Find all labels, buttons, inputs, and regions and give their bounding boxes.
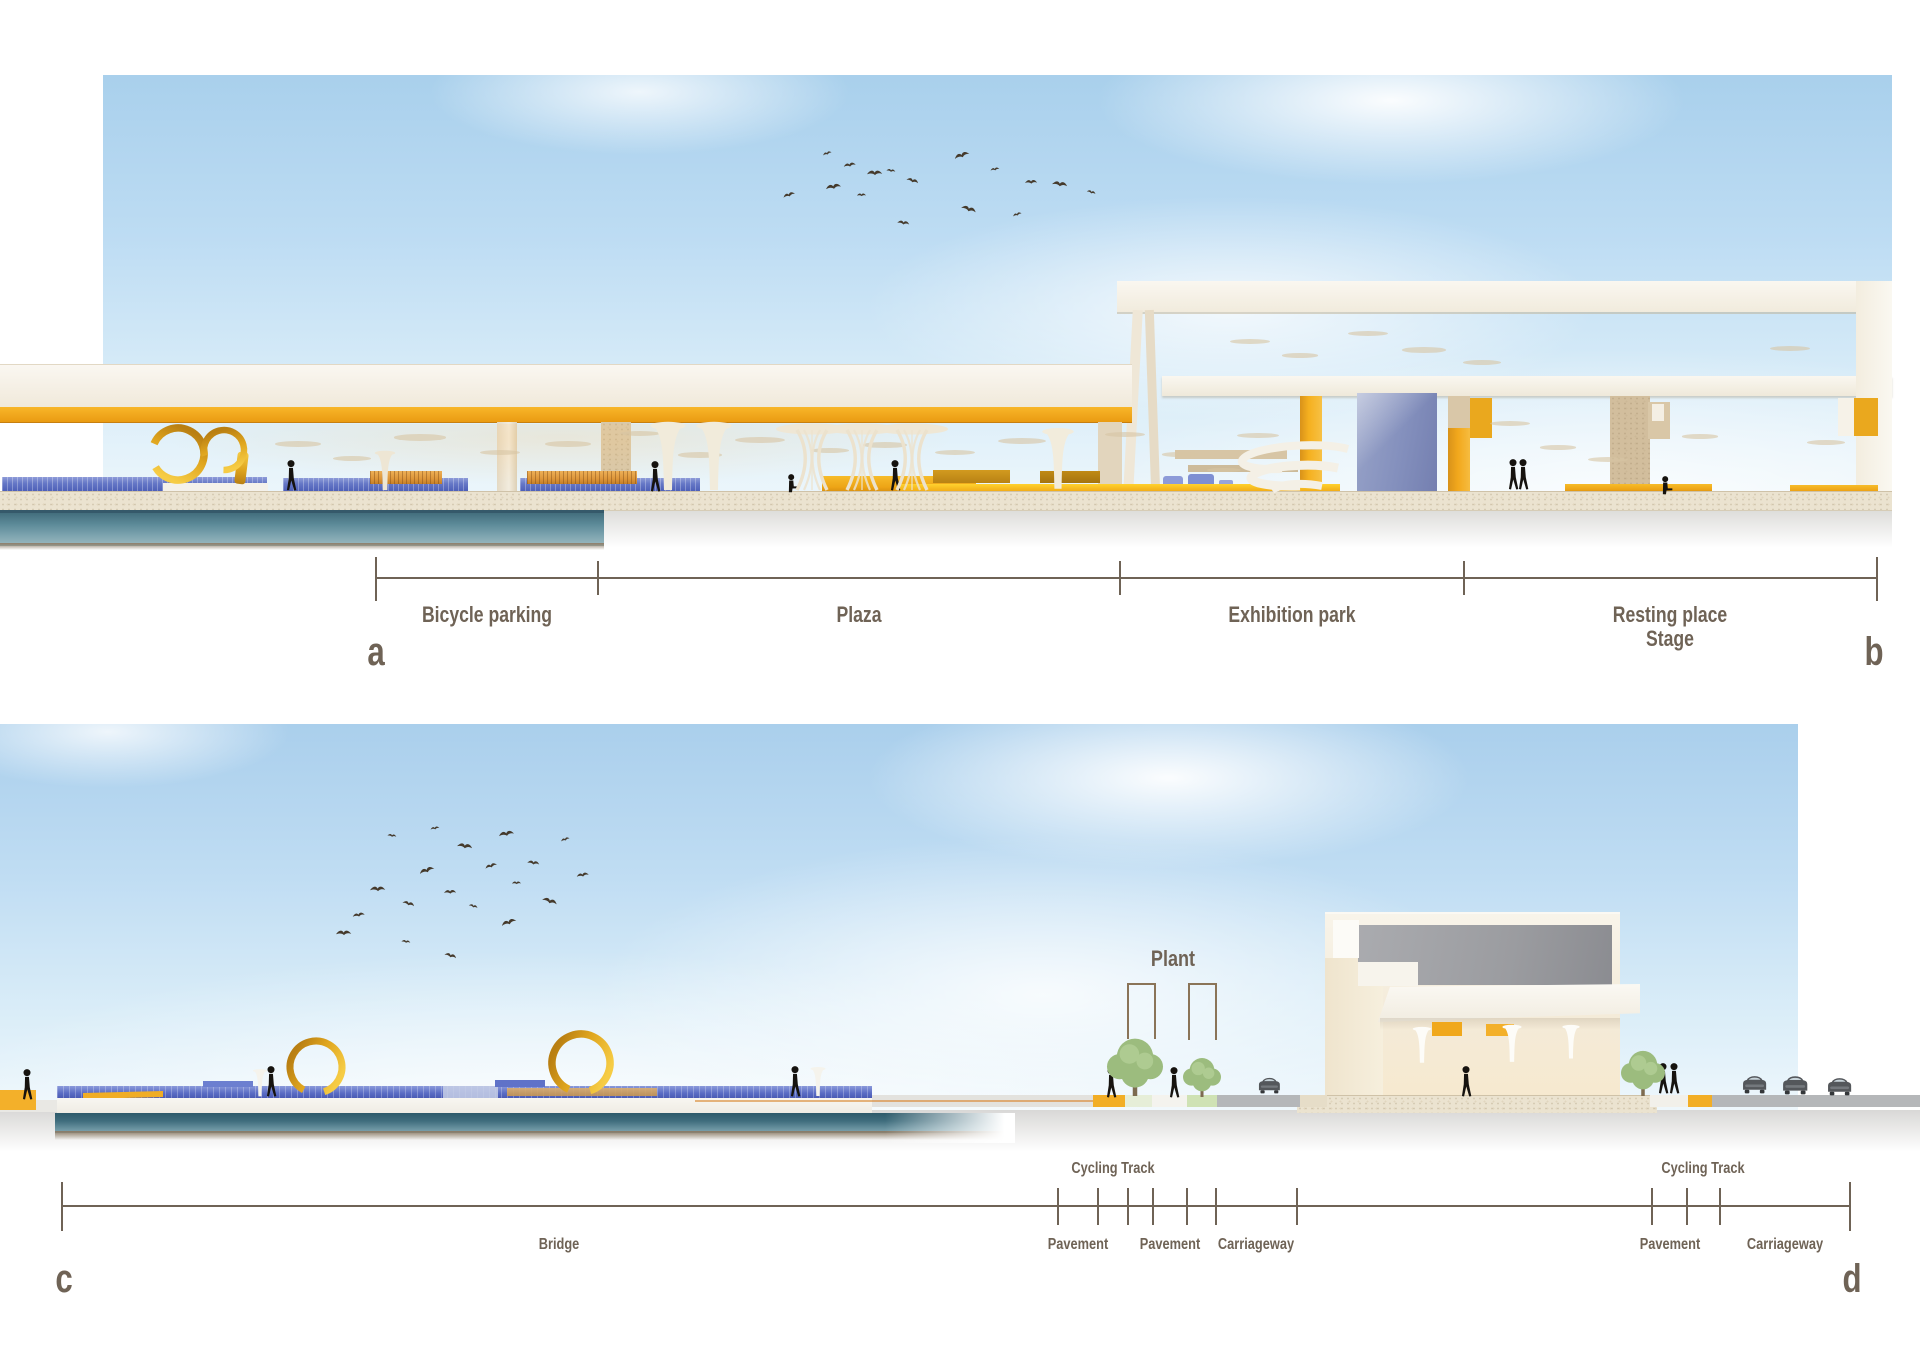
bird-icon <box>1052 181 1068 188</box>
bird-icon <box>822 151 831 156</box>
gold-ring-sculpture <box>542 1024 619 1101</box>
bird-icon <box>906 177 919 184</box>
bird-icon <box>430 826 439 830</box>
bird-icon <box>501 918 517 927</box>
dimension-tick <box>1215 1188 1217 1225</box>
dimension-tick <box>61 1182 63 1231</box>
bird-icon <box>469 903 478 908</box>
dimension-tick <box>375 557 377 601</box>
dimension-tick <box>1186 1188 1188 1225</box>
person-silhouette <box>1462 1066 1471 1096</box>
bird-icon <box>867 171 882 176</box>
person-silhouette <box>1670 1063 1679 1093</box>
bird-icon <box>897 220 910 225</box>
bird-icon <box>370 887 385 892</box>
zone-label: Carriageway <box>1168 1236 1344 1253</box>
person-silhouette <box>287 460 296 490</box>
tree <box>1107 1039 1163 1096</box>
bird-icon <box>498 830 514 837</box>
bird-icon <box>387 833 396 837</box>
dimension-tick <box>1296 1188 1298 1225</box>
tree <box>1183 1058 1221 1097</box>
car-silhouette <box>1259 1078 1280 1094</box>
car-silhouette <box>1828 1078 1851 1095</box>
person-silhouette <box>1519 459 1528 489</box>
bird-icon <box>402 900 415 907</box>
tree <box>1621 1051 1665 1096</box>
dimension-tick <box>1849 1182 1851 1231</box>
bird-icon <box>560 837 569 842</box>
dimension-tick <box>1651 1188 1653 1225</box>
tulip-canopy-column <box>1042 428 1074 489</box>
dimension-tick <box>1463 561 1465 595</box>
tulip-canopy-column <box>1502 1025 1521 1062</box>
bird-icon <box>843 162 856 167</box>
lattice-canopy-column <box>776 424 848 491</box>
dimension-tick <box>597 561 599 595</box>
bird-icon <box>336 931 351 936</box>
bird-icon <box>886 168 895 172</box>
section-marker-d: d <box>1821 1257 1883 1302</box>
dimension-tick <box>1719 1188 1721 1225</box>
bird-icon <box>783 191 796 198</box>
bird-icon <box>990 167 999 171</box>
bird-icon <box>444 890 456 894</box>
dimension-line <box>376 577 1877 579</box>
lattice-canopy-column <box>876 424 948 491</box>
tulip-canopy-column <box>1413 1027 1432 1063</box>
tulip-canopy-column <box>696 422 731 490</box>
bird-icon <box>352 912 365 917</box>
bird-icon <box>419 866 435 875</box>
plant-label: Plant <box>1107 946 1238 972</box>
car-silhouette <box>1743 1076 1766 1093</box>
zone-label: Carriageway <box>1697 1236 1873 1253</box>
zone-label-above: Cycling Track <box>1025 1160 1201 1177</box>
zone-label: Bridge <box>471 1236 647 1253</box>
bird-icon <box>954 151 970 160</box>
bird-icon <box>457 843 473 850</box>
person-silhouette <box>1170 1067 1179 1097</box>
scene-figures <box>0 0 1920 1358</box>
bird-icon <box>542 896 558 905</box>
bird-icon <box>444 952 457 959</box>
zone-label: Bicycle parking <box>375 603 599 627</box>
person-silhouette <box>23 1069 32 1099</box>
lattice-canopy-column <box>826 424 898 491</box>
dimension-tick <box>1152 1188 1154 1225</box>
dimension-tick <box>1127 1188 1129 1225</box>
dimension-tick <box>1876 557 1878 601</box>
spiral-slide <box>1242 445 1348 490</box>
person-silhouette <box>791 1066 800 1096</box>
bird-icon <box>825 183 841 190</box>
drawing-sheet: Bicycle parkingPlazaExhibition parkResti… <box>0 0 1920 1358</box>
dimension-tick <box>1057 1188 1059 1225</box>
bird-icon <box>857 194 866 197</box>
bird-icon <box>576 872 589 877</box>
tulip-canopy-column <box>811 1067 826 1096</box>
car-silhouette <box>1783 1076 1807 1094</box>
bird-icon <box>527 860 540 865</box>
tulip-canopy-column <box>1562 1025 1579 1059</box>
person-silhouette <box>651 461 660 491</box>
section-marker-b: b <box>1843 630 1905 675</box>
person-silhouette <box>1509 459 1518 489</box>
zone-label: Resting placeStage <box>1558 603 1782 651</box>
tulip-canopy-column <box>375 451 395 490</box>
tulip-canopy-column <box>253 1069 267 1096</box>
dimension-tick <box>1119 561 1121 595</box>
zone-label-above: Cycling Track <box>1615 1160 1791 1177</box>
section-marker-c: c <box>33 1257 95 1302</box>
bird-icon <box>1025 180 1037 184</box>
bird-icon <box>1087 189 1096 194</box>
person-silhouette <box>1662 476 1672 494</box>
dimension-tick <box>1097 1188 1099 1225</box>
bird-icon <box>485 862 498 869</box>
dimension-tick <box>1686 1188 1688 1225</box>
bird-icon <box>512 882 521 885</box>
zone-label: Exhibition park <box>1180 603 1404 627</box>
zone-label: Plaza <box>747 603 971 627</box>
dimension-line <box>62 1205 1850 1207</box>
bird-icon <box>1012 212 1021 217</box>
gold-ring-sculpture <box>280 1031 351 1102</box>
person-silhouette <box>267 1066 276 1096</box>
bird-icon <box>961 204 977 213</box>
section-marker-a: a <box>345 630 407 675</box>
bird-icon <box>401 939 410 943</box>
